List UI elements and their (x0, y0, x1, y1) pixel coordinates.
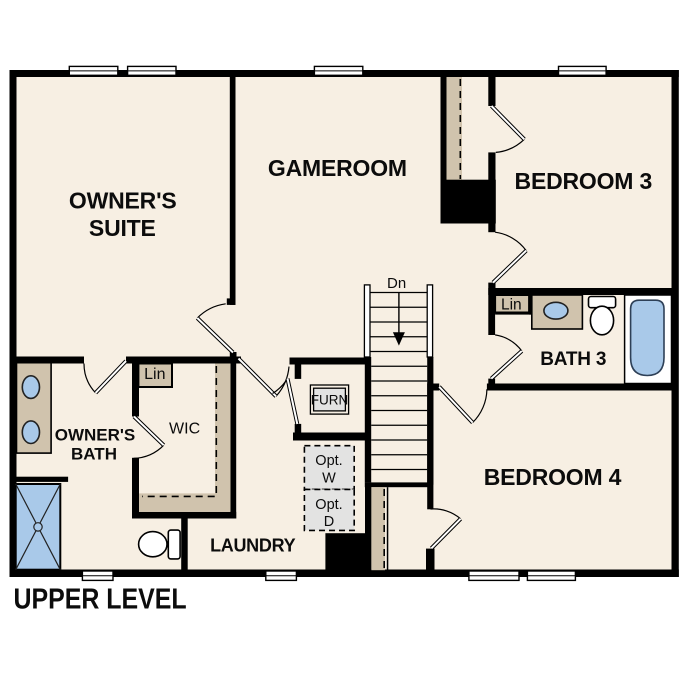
svg-text:D: D (324, 514, 334, 530)
svg-text:Lin: Lin (501, 297, 522, 314)
svg-text:W: W (322, 471, 336, 487)
svg-text:FURN: FURN (311, 392, 349, 407)
svg-text:Dn: Dn (387, 275, 406, 292)
svg-text:BEDROOM 4: BEDROOM 4 (484, 464, 622, 490)
svg-text:Lin: Lin (144, 366, 165, 383)
svg-text:WIC: WIC (169, 421, 200, 438)
svg-text:BATH 3: BATH 3 (540, 349, 606, 370)
svg-text:BATH: BATH (71, 445, 117, 464)
svg-text:LAUNDRY: LAUNDRY (210, 535, 296, 555)
svg-text:Opt.: Opt. (315, 497, 342, 513)
svg-text:BEDROOM 3: BEDROOM 3 (515, 168, 653, 194)
svg-text:GAMEROOM: GAMEROOM (268, 155, 407, 181)
svg-text:OWNER'S: OWNER'S (55, 425, 136, 444)
svg-text:UPPER LEVEL: UPPER LEVEL (14, 583, 187, 615)
svg-text:Opt.: Opt. (315, 453, 342, 469)
svg-text:OWNER'S: OWNER'S (69, 188, 177, 214)
svg-text:SUITE: SUITE (89, 215, 156, 241)
